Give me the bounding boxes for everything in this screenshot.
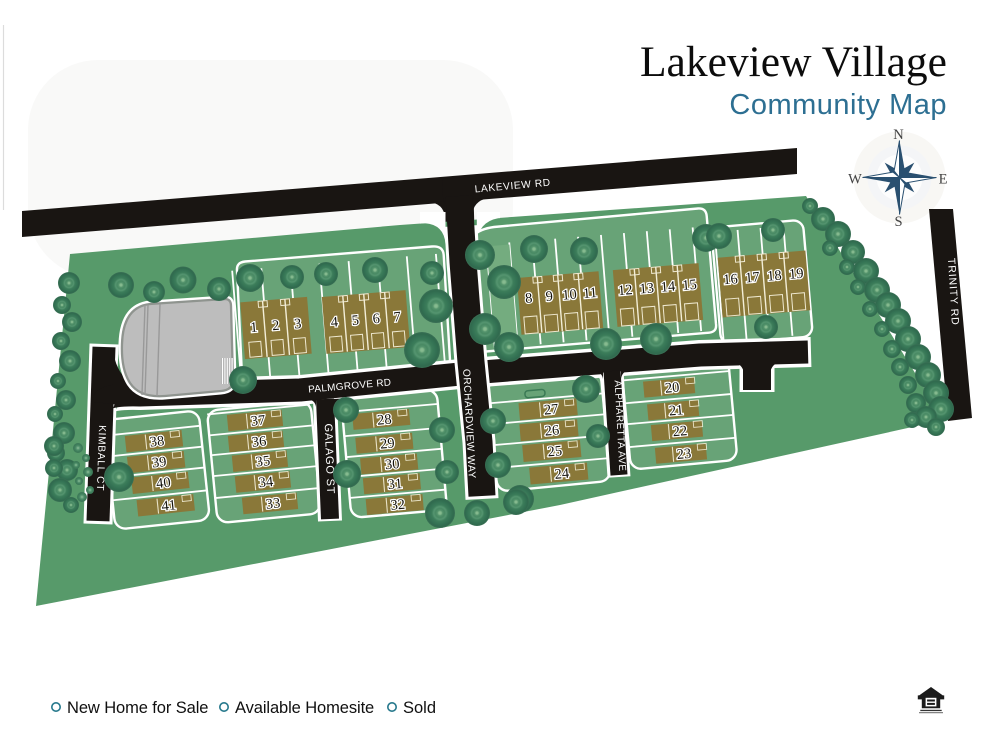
svg-text:40: 40 xyxy=(155,475,171,492)
svg-text:22: 22 xyxy=(672,423,688,440)
svg-text:35: 35 xyxy=(255,453,271,470)
svg-text:Lakeview Village: Lakeview Village xyxy=(640,38,947,86)
svg-text:38: 38 xyxy=(149,433,165,450)
svg-text:19: 19 xyxy=(788,266,804,283)
svg-text:24: 24 xyxy=(554,466,571,483)
svg-text:6: 6 xyxy=(372,311,381,328)
svg-text:E: E xyxy=(939,172,948,188)
svg-text:25: 25 xyxy=(547,443,563,460)
svg-text:9: 9 xyxy=(545,289,554,306)
svg-text:5: 5 xyxy=(351,313,360,330)
svg-text:31: 31 xyxy=(387,476,403,493)
svg-text:Available Homesite: Available Homesite xyxy=(235,699,374,717)
svg-text:15: 15 xyxy=(682,277,698,294)
svg-text:S: S xyxy=(894,214,902,230)
svg-text:34: 34 xyxy=(258,474,275,491)
svg-text:20: 20 xyxy=(664,380,680,397)
svg-text:26: 26 xyxy=(544,422,560,439)
svg-text:13: 13 xyxy=(639,280,655,297)
svg-text:3: 3 xyxy=(293,316,302,333)
svg-text:2: 2 xyxy=(272,318,281,335)
svg-text:32: 32 xyxy=(390,497,406,514)
svg-text:7: 7 xyxy=(393,309,402,326)
svg-text:29: 29 xyxy=(380,435,396,452)
svg-text:11: 11 xyxy=(582,285,597,302)
svg-text:23: 23 xyxy=(676,446,692,463)
svg-text:37: 37 xyxy=(250,412,266,429)
svg-text:14: 14 xyxy=(660,279,677,296)
svg-text:21: 21 xyxy=(668,402,684,419)
svg-text:18: 18 xyxy=(767,268,783,285)
svg-text:10: 10 xyxy=(562,287,578,304)
svg-text:1: 1 xyxy=(250,320,259,337)
svg-text:New Home for Sale: New Home for Sale xyxy=(67,699,208,717)
svg-text:28: 28 xyxy=(376,412,392,429)
svg-text:39: 39 xyxy=(151,454,167,471)
svg-text:8: 8 xyxy=(525,290,534,307)
svg-text:N: N xyxy=(893,127,904,143)
svg-text:36: 36 xyxy=(251,433,267,450)
svg-text:Sold: Sold xyxy=(403,699,436,717)
svg-text:33: 33 xyxy=(265,495,281,512)
svg-text:W: W xyxy=(848,172,862,188)
svg-text:30: 30 xyxy=(384,456,400,473)
svg-text:Community Map: Community Map xyxy=(729,89,947,121)
svg-text:17: 17 xyxy=(745,269,761,286)
svg-text:27: 27 xyxy=(543,401,559,418)
svg-text:12: 12 xyxy=(617,282,633,299)
svg-text:16: 16 xyxy=(723,271,739,288)
svg-text:GALAGO ST: GALAGO ST xyxy=(322,423,336,494)
svg-text:41: 41 xyxy=(161,497,177,514)
